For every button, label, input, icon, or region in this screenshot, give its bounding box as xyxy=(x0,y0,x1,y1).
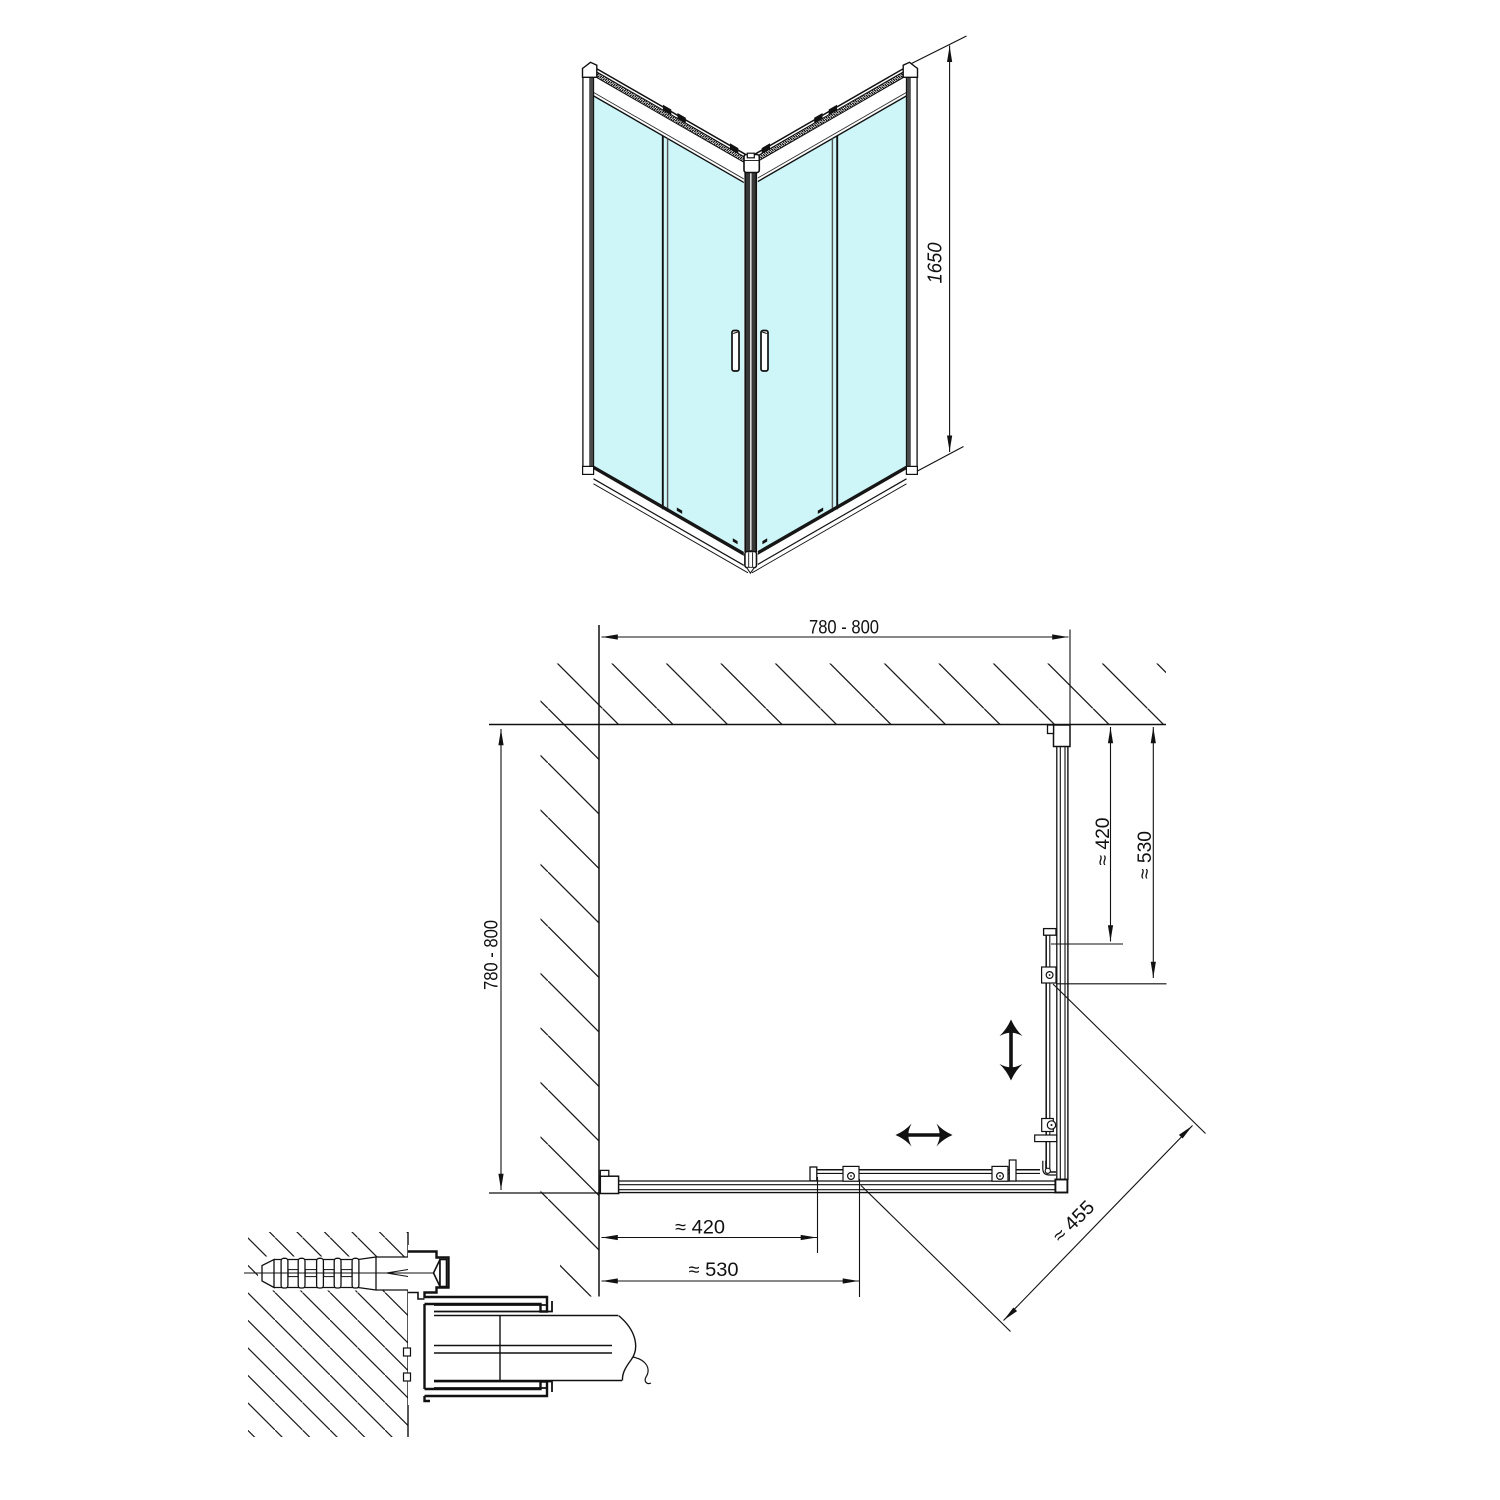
svg-text:≈ 455: ≈ 455 xyxy=(1048,1196,1099,1247)
svg-text:≈ 530: ≈ 530 xyxy=(689,1259,739,1281)
svg-text:≈ 530: ≈ 530 xyxy=(1134,831,1156,879)
svg-text:780 - 800: 780 - 800 xyxy=(482,920,503,990)
svg-text:≈ 420: ≈ 420 xyxy=(1092,817,1114,865)
svg-text:≈ 420: ≈ 420 xyxy=(675,1217,725,1239)
svg-text:1650: 1650 xyxy=(924,242,947,284)
svg-text:780 - 800: 780 - 800 xyxy=(809,618,879,639)
